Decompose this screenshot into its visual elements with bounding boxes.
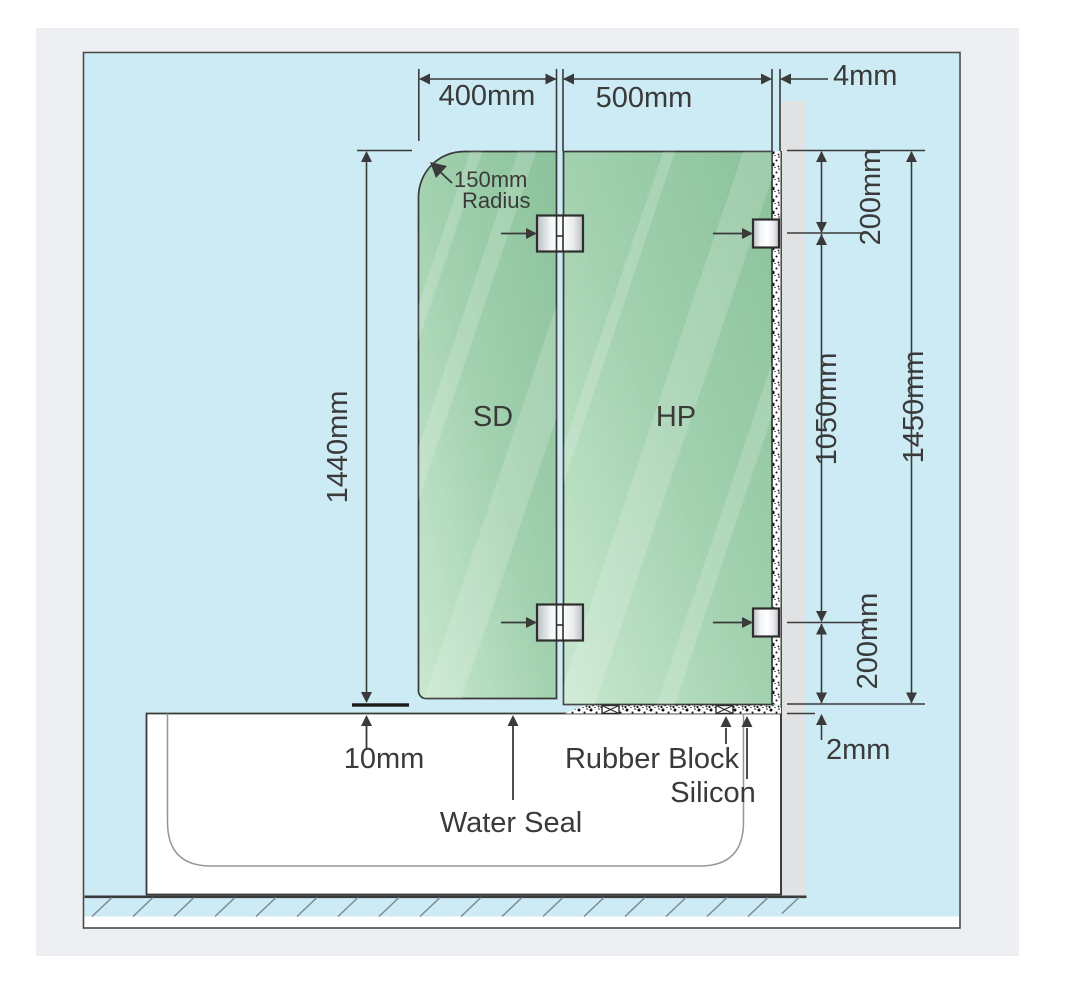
svg-text:SD: SD	[473, 401, 513, 433]
svg-text:1440mm: 1440mm	[322, 391, 354, 504]
svg-text:400mm: 400mm	[439, 80, 536, 112]
svg-text:HP: HP	[656, 401, 696, 433]
svg-text:1450mm: 1450mm	[898, 351, 930, 464]
svg-text:200mm: 200mm	[855, 149, 887, 246]
svg-text:2mm: 2mm	[826, 734, 890, 766]
svg-text:Water Seal: Water Seal	[440, 807, 582, 839]
svg-text:200mm: 200mm	[852, 593, 884, 690]
svg-text:1050mm: 1050mm	[811, 353, 843, 466]
svg-text:10mm: 10mm	[344, 743, 425, 775]
svg-text:4mm: 4mm	[833, 60, 897, 92]
svg-text:Radius: Radius	[462, 188, 530, 213]
svg-text:500mm: 500mm	[596, 82, 693, 114]
svg-text:Silicon: Silicon	[670, 777, 755, 809]
svg-text:Rubber Block: Rubber Block	[565, 743, 740, 775]
